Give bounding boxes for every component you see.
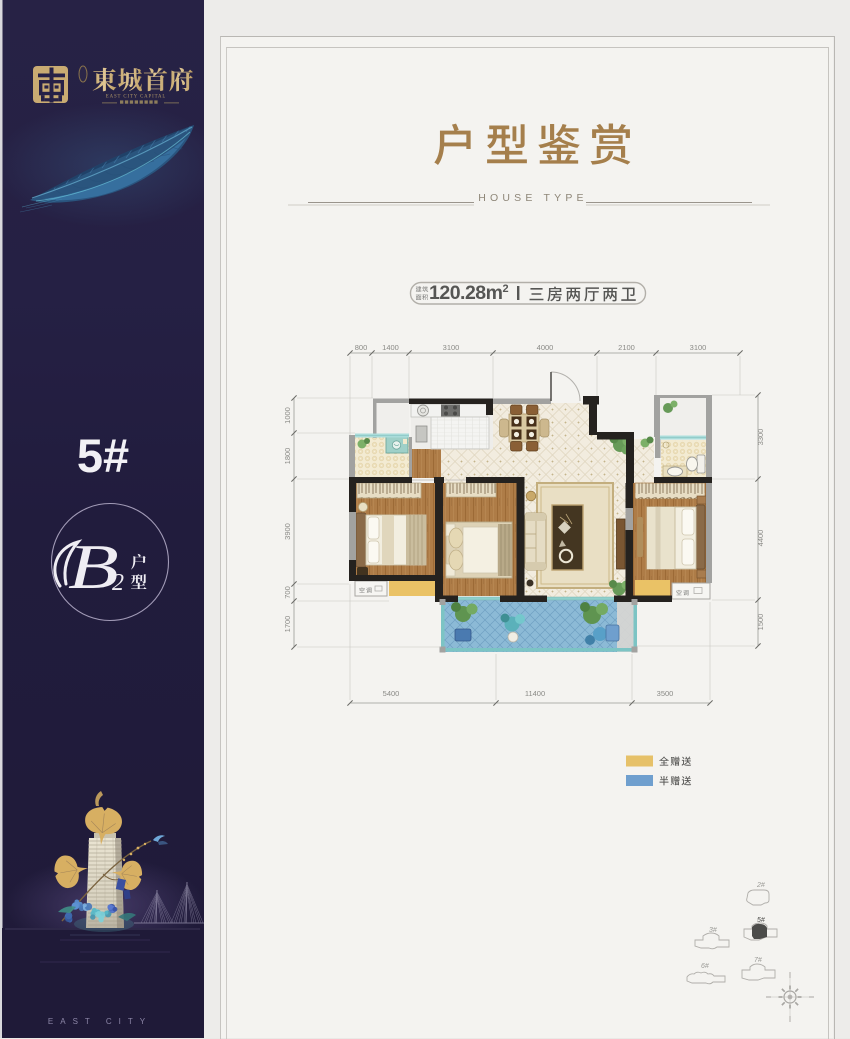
svg-text:2100: 2100 [618,343,635,352]
svg-text:800: 800 [355,343,368,352]
svg-text:4400: 4400 [756,530,765,547]
svg-text:HOUSE TYPE: HOUSE TYPE [478,192,588,204]
svg-text:1700: 1700 [283,616,292,633]
svg-text:120.28m2: 120.28m2 [429,282,508,304]
svg-text:1400: 1400 [382,343,399,352]
svg-text:700: 700 [283,586,292,599]
svg-text:1800: 1800 [283,448,292,465]
svg-text:EAST CITY CAPITAL: EAST CITY CAPITAL [106,95,167,100]
svg-text:3500: 3500 [657,689,674,698]
svg-text:1500: 1500 [756,614,765,631]
svg-text:5400: 5400 [383,689,400,698]
svg-text:3100: 3100 [443,343,460,352]
svg-text:2#: 2# [756,882,765,889]
svg-text:4000: 4000 [537,343,554,352]
svg-text:5#: 5# [77,429,129,482]
svg-text:EAST CITY: EAST CITY [48,1017,152,1026]
svg-text:1000: 1000 [283,407,292,424]
svg-text:3100: 3100 [690,343,707,352]
svg-text:2: 2 [112,570,124,596]
svg-text:3900: 3900 [283,523,292,540]
svg-text:7#: 7# [754,957,762,964]
svg-text:3300: 3300 [756,429,765,446]
svg-text:6#: 6# [701,963,709,970]
svg-text:11400: 11400 [525,689,545,698]
